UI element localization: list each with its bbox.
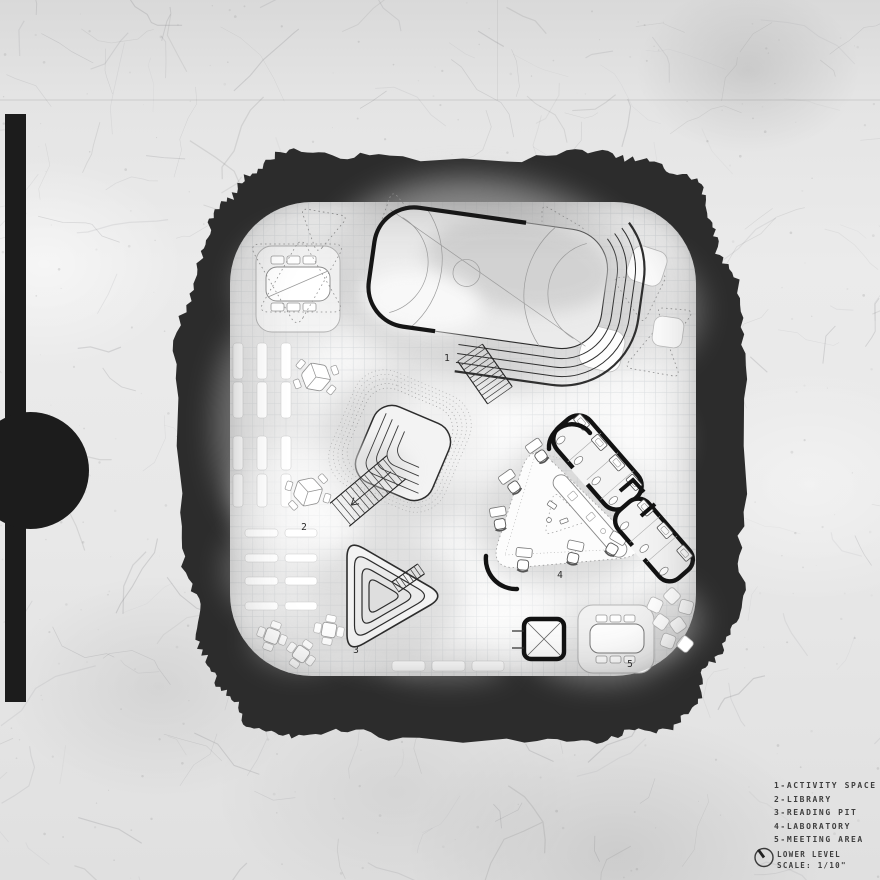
- bookshelf: [281, 382, 291, 418]
- chair: [517, 560, 529, 571]
- bookshelf: [285, 602, 317, 610]
- marker-laboratory: 4: [557, 570, 563, 581]
- chair: [287, 303, 300, 311]
- chair: [271, 256, 284, 264]
- legend: 1-ACTIVITY SPACE 2-LIBRARY 3-READING PIT…: [774, 779, 877, 847]
- desk: [516, 547, 533, 557]
- bookshelf: [245, 529, 278, 537]
- chair: [610, 656, 621, 663]
- scale-label: SCALE: 1/10": [777, 860, 847, 871]
- bookshelf: [472, 661, 504, 671]
- marker-activity-space: 1: [444, 353, 450, 364]
- legend-item: 3-READING PIT: [774, 806, 877, 820]
- bookshelf: [233, 474, 243, 507]
- bookshelf: [257, 474, 267, 507]
- chair: [596, 615, 607, 622]
- chair: [271, 303, 284, 311]
- meeting-table: [590, 624, 644, 653]
- chair: [567, 552, 580, 564]
- legend-item: 4-LABORATORY: [774, 820, 877, 834]
- chair: [610, 615, 621, 622]
- legend-item: 5-MEETING AREA: [774, 833, 877, 847]
- north-arrow-icon: [753, 846, 775, 868]
- chair: [321, 637, 332, 646]
- chair: [313, 622, 322, 633]
- bookshelf: [281, 343, 291, 379]
- bookshelf: [233, 436, 243, 470]
- bookshelf: [257, 382, 267, 418]
- bookshelf: [285, 554, 317, 562]
- bookshelf: [392, 661, 425, 671]
- chair: [336, 626, 345, 637]
- marker-reading-pit: 3: [353, 645, 359, 656]
- floor-plan-drawing: 1 2 3 4 5: [0, 0, 880, 880]
- legend-item: 2-LIBRARY: [774, 793, 877, 807]
- legend-item: 1-ACTIVITY SPACE: [774, 779, 877, 793]
- chair: [596, 656, 607, 663]
- chair: [303, 303, 316, 311]
- marker-meeting-area: 5: [627, 659, 633, 670]
- meeting-room: [578, 605, 654, 673]
- conference-room: [256, 246, 340, 332]
- bookshelf: [233, 343, 243, 379]
- bookshelf: [245, 554, 278, 562]
- bookshelf: [257, 436, 267, 470]
- titleblock: LOWER LEVEL SCALE: 1/10": [753, 846, 847, 871]
- floor-cushion: [651, 315, 685, 349]
- chair: [325, 614, 336, 623]
- marker-library: 2: [301, 522, 307, 533]
- bookshelf: [245, 602, 278, 610]
- chair: [303, 256, 316, 264]
- level-label: LOWER LEVEL: [777, 849, 847, 860]
- bookshelf: [285, 577, 317, 585]
- bookshelf: [281, 436, 291, 470]
- drawing-sheet: 1 2 3 4 5 1-ACTIVITY SPACE 2-LIBRARY 3-R…: [0, 0, 880, 880]
- bookshelf: [257, 343, 267, 379]
- bookshelf: [233, 382, 243, 418]
- chair: [624, 615, 635, 622]
- tumbling-cube: [678, 599, 695, 616]
- bookshelf: [432, 661, 465, 671]
- chair: [494, 518, 507, 530]
- bookshelf: [245, 577, 278, 585]
